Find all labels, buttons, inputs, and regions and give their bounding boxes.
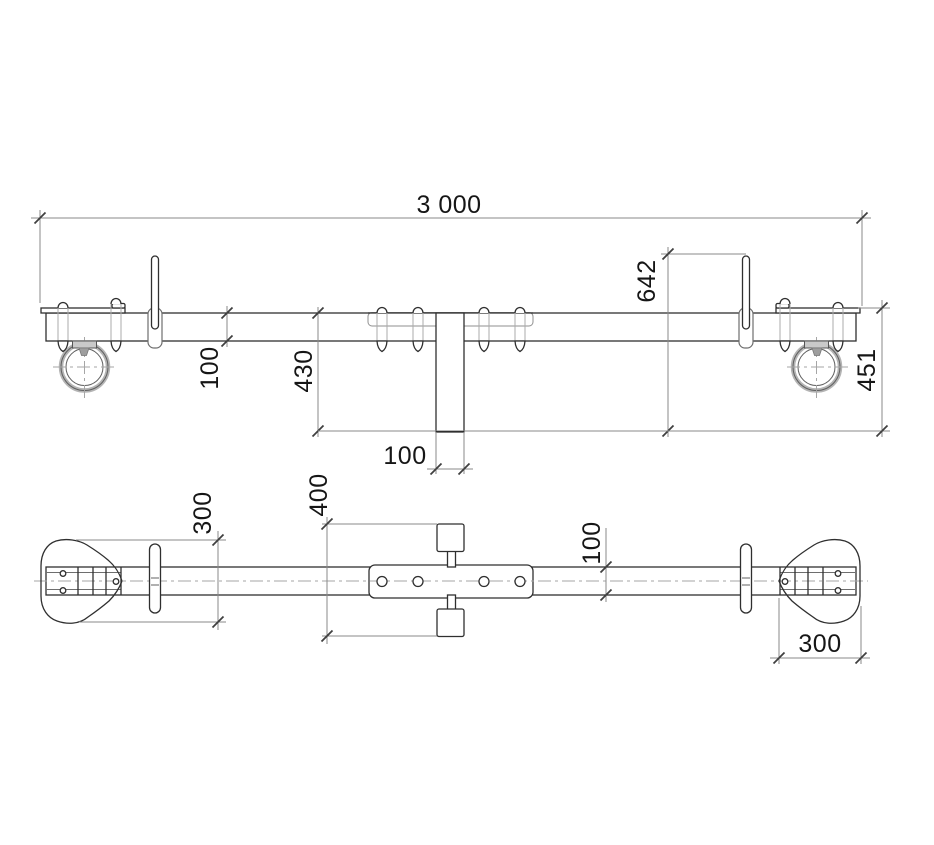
dimension-pin-height: 642 — [633, 247, 746, 437]
dimension-post-width: 100 — [383, 432, 473, 475]
dim-right-paddle: 300 — [798, 630, 841, 658]
wheel-bracket — [73, 341, 97, 348]
rivet-hole — [60, 588, 66, 594]
end-plate — [41, 308, 125, 313]
plan-view: 300 400 100 300 — [34, 473, 870, 664]
rivet-hole — [113, 579, 119, 585]
dim-pin-height: 642 — [633, 259, 661, 302]
dim-post-width: 100 — [383, 442, 426, 470]
dim-overall-length: 3 000 — [416, 191, 481, 219]
dim-post-drop: 430 — [290, 349, 318, 392]
dim-left-paddle: 300 — [189, 491, 217, 534]
dimension-right-paddle: 300 — [770, 598, 870, 664]
rivet-hole — [60, 571, 66, 577]
dim-beam-depth: 100 — [196, 346, 224, 389]
dim-bar-width: 100 — [578, 521, 606, 564]
dim-end-drop: 451 — [853, 348, 881, 391]
end-plate-lip — [112, 304, 125, 309]
front-view: 3 000 642 100 430 — [31, 191, 890, 475]
technical-drawing-canvas: 3 000 642 100 430 — [0, 0, 934, 845]
support-post — [436, 313, 464, 432]
locating-pin — [152, 256, 159, 329]
top-roller — [437, 524, 464, 567]
dimension-end-drop: 451 — [853, 300, 890, 437]
bottom-roller — [437, 595, 464, 637]
dimension-clamp-span: 400 — [305, 473, 437, 644]
dim-clamp-span: 400 — [305, 473, 333, 516]
beam-trolley-drawing: 3 000 642 100 430 — [0, 0, 934, 845]
